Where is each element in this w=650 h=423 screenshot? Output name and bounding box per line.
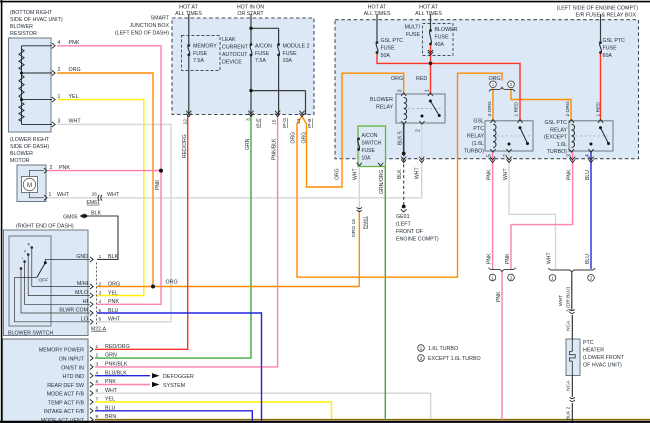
svg-text:GSL PTC: GSL PTC — [381, 38, 404, 44]
svg-text:2: 2 — [96, 353, 99, 359]
svg-text:BLK 2: BLK 2 — [566, 406, 572, 420]
svg-text:FUSE: FUSE — [283, 51, 298, 57]
svg-text:FUSE: FUSE — [381, 46, 396, 52]
svg-text:MODULE 2: MODULE 2 — [283, 44, 310, 50]
svg-text:1: 1 — [99, 254, 102, 260]
svg-text:MEMORY: MEMORY — [193, 44, 217, 50]
svg-text:2 ORG: 2 ORG — [565, 101, 571, 116]
svg-text:FUSE: FUSE — [406, 32, 421, 38]
svg-text:MODE ACT VENT: MODE ACT VENT — [41, 418, 85, 423]
svg-text:ORG: ORG — [302, 132, 308, 144]
svg-text:7.5A: 7.5A — [193, 58, 204, 64]
svg-text:PNK: PNK — [487, 253, 493, 264]
svg-text:ORG: ORG — [69, 67, 81, 73]
svg-text:1: 1 — [96, 344, 99, 350]
svg-text:OR START: OR START — [237, 11, 264, 17]
svg-text:LO: LO — [81, 316, 88, 322]
svg-text:BLK: BLK — [91, 210, 101, 216]
svg-text:BLK: BLK — [108, 254, 118, 260]
svg-text:OFF: OFF — [39, 278, 49, 284]
svg-text:AUTOCUT: AUTOCUT — [222, 52, 248, 58]
svg-text:1 RED: 1 RED — [514, 102, 520, 117]
svg-text:2: 2 — [420, 356, 423, 361]
svg-text:BLOWER: BLOWER — [10, 151, 33, 157]
svg-text:1: 1 — [420, 346, 423, 351]
svg-text:WHT: WHT — [105, 388, 118, 394]
svg-text:BLOWER: BLOWER — [10, 24, 33, 30]
svg-text:GE01: GE01 — [396, 214, 410, 220]
svg-text:SMART: SMART — [151, 16, 170, 22]
svg-text:RED/ORG: RED/ORG — [182, 134, 188, 158]
svg-text:7.5A: 7.5A — [255, 58, 266, 64]
svg-text:WHT: WHT — [503, 168, 509, 180]
svg-text:(LOWER RIGHT: (LOWER RIGHT — [10, 137, 50, 143]
svg-text:(EXCEPT: (EXCEPT — [544, 135, 568, 141]
svg-text:EM61: EM61 — [363, 216, 369, 229]
svg-text:TURBO): TURBO) — [547, 149, 568, 155]
svg-text:ORG: ORG — [291, 132, 297, 144]
svg-text:GSL PTC: GSL PTC — [545, 120, 568, 126]
svg-text:2: 2 — [58, 67, 61, 73]
svg-text:BLK: BLK — [397, 169, 403, 179]
svg-text:60A: 60A — [603, 53, 613, 59]
svg-text:BLU: BLU — [585, 254, 591, 264]
svg-text:WHT: WHT — [558, 295, 564, 306]
svg-text:1: 1 — [424, 89, 430, 92]
svg-text:(1.6L: (1.6L — [472, 141, 484, 147]
svg-text:EXCEPT 1.6L TURBO: EXCEPT 1.6L TURBO — [428, 356, 481, 362]
svg-text:4: 4 — [585, 154, 591, 157]
svg-text:4: 4 — [99, 299, 102, 305]
svg-text:3: 3 — [58, 119, 61, 125]
svg-text:A/CON: A/CON — [255, 44, 272, 50]
svg-text:PNK: PNK — [155, 179, 161, 190]
svg-text:3: 3 — [99, 290, 102, 296]
svg-text:3: 3 — [246, 118, 252, 121]
svg-text:2: 2 — [503, 154, 509, 157]
svg-text:GRN: GRN — [245, 138, 251, 150]
svg-text:(RIGHT END OF DASH): (RIGHT END OF DASH) — [16, 224, 74, 230]
svg-text:SWITCH: SWITCH — [362, 141, 382, 147]
svg-text:PNK: PNK — [59, 165, 70, 171]
svg-text:3: 3 — [567, 154, 573, 157]
svg-text:1.6L TURBO: 1.6L TURBO — [428, 346, 458, 352]
svg-text:ALL TIMES: ALL TIMES — [364, 11, 391, 17]
svg-text:1 RED: 1 RED — [596, 102, 602, 117]
svg-text:M/LO: M/LO — [75, 290, 88, 296]
svg-text:TURBO): TURBO) — [464, 148, 485, 154]
svg-text:RELAY: RELAY — [376, 105, 393, 111]
svg-text:HOT AT: HOT AT — [419, 4, 438, 10]
svg-text:RELAY: RELAY — [467, 134, 484, 140]
svg-text:IP-B: IP-B — [307, 118, 313, 128]
svg-text:WHT: WHT — [108, 317, 121, 323]
svg-text:GSL PTC: GSL PTC — [603, 38, 626, 44]
svg-text:SYSTEM: SYSTEM — [163, 383, 186, 389]
svg-text:1: 1 — [492, 82, 495, 87]
svg-text:BLU: BLU — [105, 405, 115, 411]
svg-text:(LEFT SIDE OF ENGINE COMPT): (LEFT SIDE OF ENGINE COMPT) — [557, 5, 639, 11]
svg-text:6: 6 — [99, 317, 102, 323]
svg-text:3: 3 — [398, 89, 404, 92]
svg-text:YEL: YEL — [105, 397, 115, 403]
svg-text:2: 2 — [50, 165, 53, 171]
svg-text:5: 5 — [487, 154, 493, 157]
svg-text:NCA: NCA — [566, 320, 572, 331]
svg-text:40A: 40A — [435, 42, 445, 48]
svg-text:BLOWER: BLOWER — [370, 97, 393, 103]
svg-text:(BOTTOM RIGHT: (BOTTOM RIGHT — [10, 10, 53, 16]
svg-text:2: 2 — [416, 129, 422, 132]
svg-text:M22-A: M22-A — [91, 327, 107, 333]
svg-text:ENGINE COMPT): ENGINE COMPT) — [396, 237, 439, 243]
svg-text:3 (OR BLU): 3 (OR BLU) — [566, 287, 572, 312]
svg-text:3 ORG: 3 ORG — [487, 101, 493, 116]
svg-text:FUSE: FUSE — [362, 148, 376, 154]
svg-text:LEAK: LEAK — [222, 37, 236, 43]
svg-text:HTD IND: HTD IND — [63, 374, 85, 380]
svg-text:13: 13 — [296, 118, 302, 124]
svg-text:DEVICE: DEVICE — [222, 60, 242, 66]
svg-text:lll: lll — [28, 243, 31, 247]
svg-text:BLOWER SWITCH: BLOWER SWITCH — [8, 330, 53, 336]
svg-text:15: 15 — [272, 119, 278, 125]
svg-text:FUSE: FUSE — [603, 46, 618, 52]
svg-text:WHT: WHT — [107, 192, 120, 198]
svg-text:IP-E: IP-E — [256, 118, 262, 128]
svg-text:DEFOGGER: DEFOGGER — [163, 374, 194, 380]
svg-text:PNK: PNK — [487, 169, 493, 180]
svg-text:3: 3 — [96, 362, 99, 368]
svg-text:MEMORY POWER: MEMORY POWER — [39, 348, 84, 354]
svg-text:ORG: ORG — [166, 279, 178, 285]
svg-text:GND: GND — [76, 254, 88, 260]
svg-text:YEL: YEL — [108, 290, 118, 296]
svg-text:HOT AT: HOT AT — [368, 4, 387, 10]
svg-text:PNK: PNK — [108, 299, 119, 305]
svg-text:EM61: EM61 — [87, 200, 100, 206]
svg-text:E/R FUSE & RELAY BOX: E/R FUSE & RELAY BOX — [576, 13, 637, 19]
svg-text:1: 1 — [58, 94, 61, 100]
svg-text:PNK: PNK — [69, 40, 80, 46]
svg-text:GM05: GM05 — [63, 214, 77, 220]
svg-text:SIDE OF DASH): SIDE OF DASH) — [10, 144, 49, 150]
svg-text:PNK/BLK: PNK/BLK — [272, 138, 278, 160]
svg-text:BRN: BRN — [105, 414, 116, 420]
svg-text:PTC: PTC — [473, 126, 484, 132]
svg-text:ON/ST IN: ON/ST IN — [61, 365, 84, 371]
svg-text:2: 2 — [510, 82, 513, 87]
svg-text:26: 26 — [92, 192, 98, 198]
svg-text:CURRENT: CURRENT — [222, 45, 249, 51]
svg-text:ALL TIMES: ALL TIMES — [415, 11, 442, 17]
svg-text:MOTOR: MOTOR — [10, 158, 30, 164]
svg-text:HI: HI — [83, 299, 88, 305]
svg-text:WHT: WHT — [69, 119, 82, 125]
svg-text:ON INPUT: ON INPUT — [59, 357, 85, 363]
svg-text:NCA: NCA — [566, 380, 572, 391]
svg-text:ORG: ORG — [335, 168, 341, 180]
svg-text:BLK 5: BLK 5 — [398, 131, 404, 145]
svg-text:BLWR COM: BLWR COM — [59, 308, 88, 314]
svg-text:YEL: YEL — [69, 94, 79, 100]
svg-text:SIDE OF HVAC UNIT): SIDE OF HVAC UNIT) — [10, 17, 63, 23]
svg-text:HOT IN ON: HOT IN ON — [237, 4, 264, 10]
svg-text:9: 9 — [96, 414, 99, 420]
svg-text:M/HI: M/HI — [77, 281, 88, 287]
svg-text:ORG: ORG — [391, 76, 403, 82]
svg-text:1: 1 — [491, 275, 494, 280]
svg-text:FUSE: FUSE — [255, 51, 270, 57]
svg-text:10A: 10A — [362, 156, 372, 162]
svg-text:PNK: PNK — [567, 169, 573, 180]
svg-text:(LEFT: (LEFT — [396, 222, 411, 228]
svg-text:BLU/BLK: BLU/BLK — [105, 370, 127, 376]
svg-text:BLU: BLU — [108, 308, 118, 314]
svg-text:7: 7 — [96, 397, 99, 403]
svg-text:TEMP ACT F/B: TEMP ACT F/B — [48, 400, 84, 406]
svg-text:GSL: GSL — [473, 119, 484, 125]
svg-text:OF HVAC UNIT): OF HVAC UNIT) — [583, 363, 622, 369]
svg-text:RELAY: RELAY — [550, 127, 567, 133]
svg-text:HOT AT: HOT AT — [179, 4, 198, 10]
svg-text:RED: RED — [416, 76, 427, 82]
svg-text:PNK: PNK — [505, 253, 511, 264]
svg-text:WHT: WHT — [57, 192, 70, 198]
svg-text:6: 6 — [96, 388, 99, 394]
svg-text:50A: 50A — [381, 53, 391, 59]
svg-text:FRONT OF: FRONT OF — [396, 229, 424, 235]
svg-text:M: M — [27, 183, 32, 189]
svg-text:(LOWER FRONT: (LOWER FRONT — [583, 355, 625, 361]
svg-text:ORG 16: ORG 16 — [351, 219, 357, 237]
svg-text:WHT: WHT — [353, 168, 359, 180]
svg-text:(LEFT END OF DASH): (LEFT END OF DASH) — [115, 31, 169, 37]
svg-text:GRN/ORG: GRN/ORG — [379, 170, 385, 194]
svg-text:REAR DEF SW: REAR DEF SW — [47, 383, 84, 389]
svg-text:PNK: PNK — [496, 291, 502, 302]
svg-text:BLOWER: BLOWER — [435, 27, 458, 33]
svg-text:HEATER: HEATER — [583, 348, 604, 354]
svg-text:GRN: GRN — [105, 353, 117, 359]
svg-text:5: 5 — [96, 379, 99, 385]
svg-text:BLU: BLU — [585, 170, 591, 180]
svg-text:RED/ORG: RED/ORG — [105, 344, 130, 350]
svg-text:1.6L: 1.6L — [557, 142, 567, 148]
svg-text:FUSE: FUSE — [193, 51, 208, 57]
svg-text:MULTI: MULTI — [405, 25, 421, 31]
svg-text:IP-G: IP-G — [282, 118, 288, 128]
svg-text:WHT: WHT — [415, 167, 421, 179]
svg-text:FUSE: FUSE — [435, 35, 450, 41]
svg-text:22: 22 — [183, 119, 189, 125]
svg-text:1: 1 — [49, 192, 52, 198]
svg-text:ALL TIMES: ALL TIMES — [175, 11, 202, 17]
svg-text:PNK: PNK — [105, 379, 116, 385]
svg-text:2: 2 — [99, 281, 102, 287]
svg-text:A/CON: A/CON — [362, 133, 378, 139]
svg-text:INTAKE ACT F/B: INTAKE ACT F/B — [44, 409, 85, 415]
svg-text:PNK/BLK: PNK/BLK — [105, 362, 128, 368]
svg-text:4: 4 — [58, 40, 61, 46]
svg-text:RESISTOR: RESISTOR — [10, 31, 37, 37]
svg-text:5: 5 — [99, 308, 102, 314]
svg-text:ORG: ORG — [108, 281, 120, 287]
svg-text:PTC: PTC — [583, 340, 594, 346]
svg-text:4: 4 — [96, 370, 99, 376]
svg-text:ll: ll — [24, 250, 26, 254]
svg-text:1: 1 — [551, 276, 554, 281]
svg-text:8: 8 — [96, 405, 99, 411]
svg-text:2: 2 — [510, 275, 513, 280]
svg-text:10A: 10A — [283, 58, 293, 64]
svg-text:JUNCTION BOX: JUNCTION BOX — [130, 23, 170, 29]
svg-text:MODE ACT F/B: MODE ACT F/B — [47, 392, 85, 398]
svg-text:WHT: WHT — [547, 252, 553, 264]
svg-text:2: 2 — [590, 276, 593, 281]
